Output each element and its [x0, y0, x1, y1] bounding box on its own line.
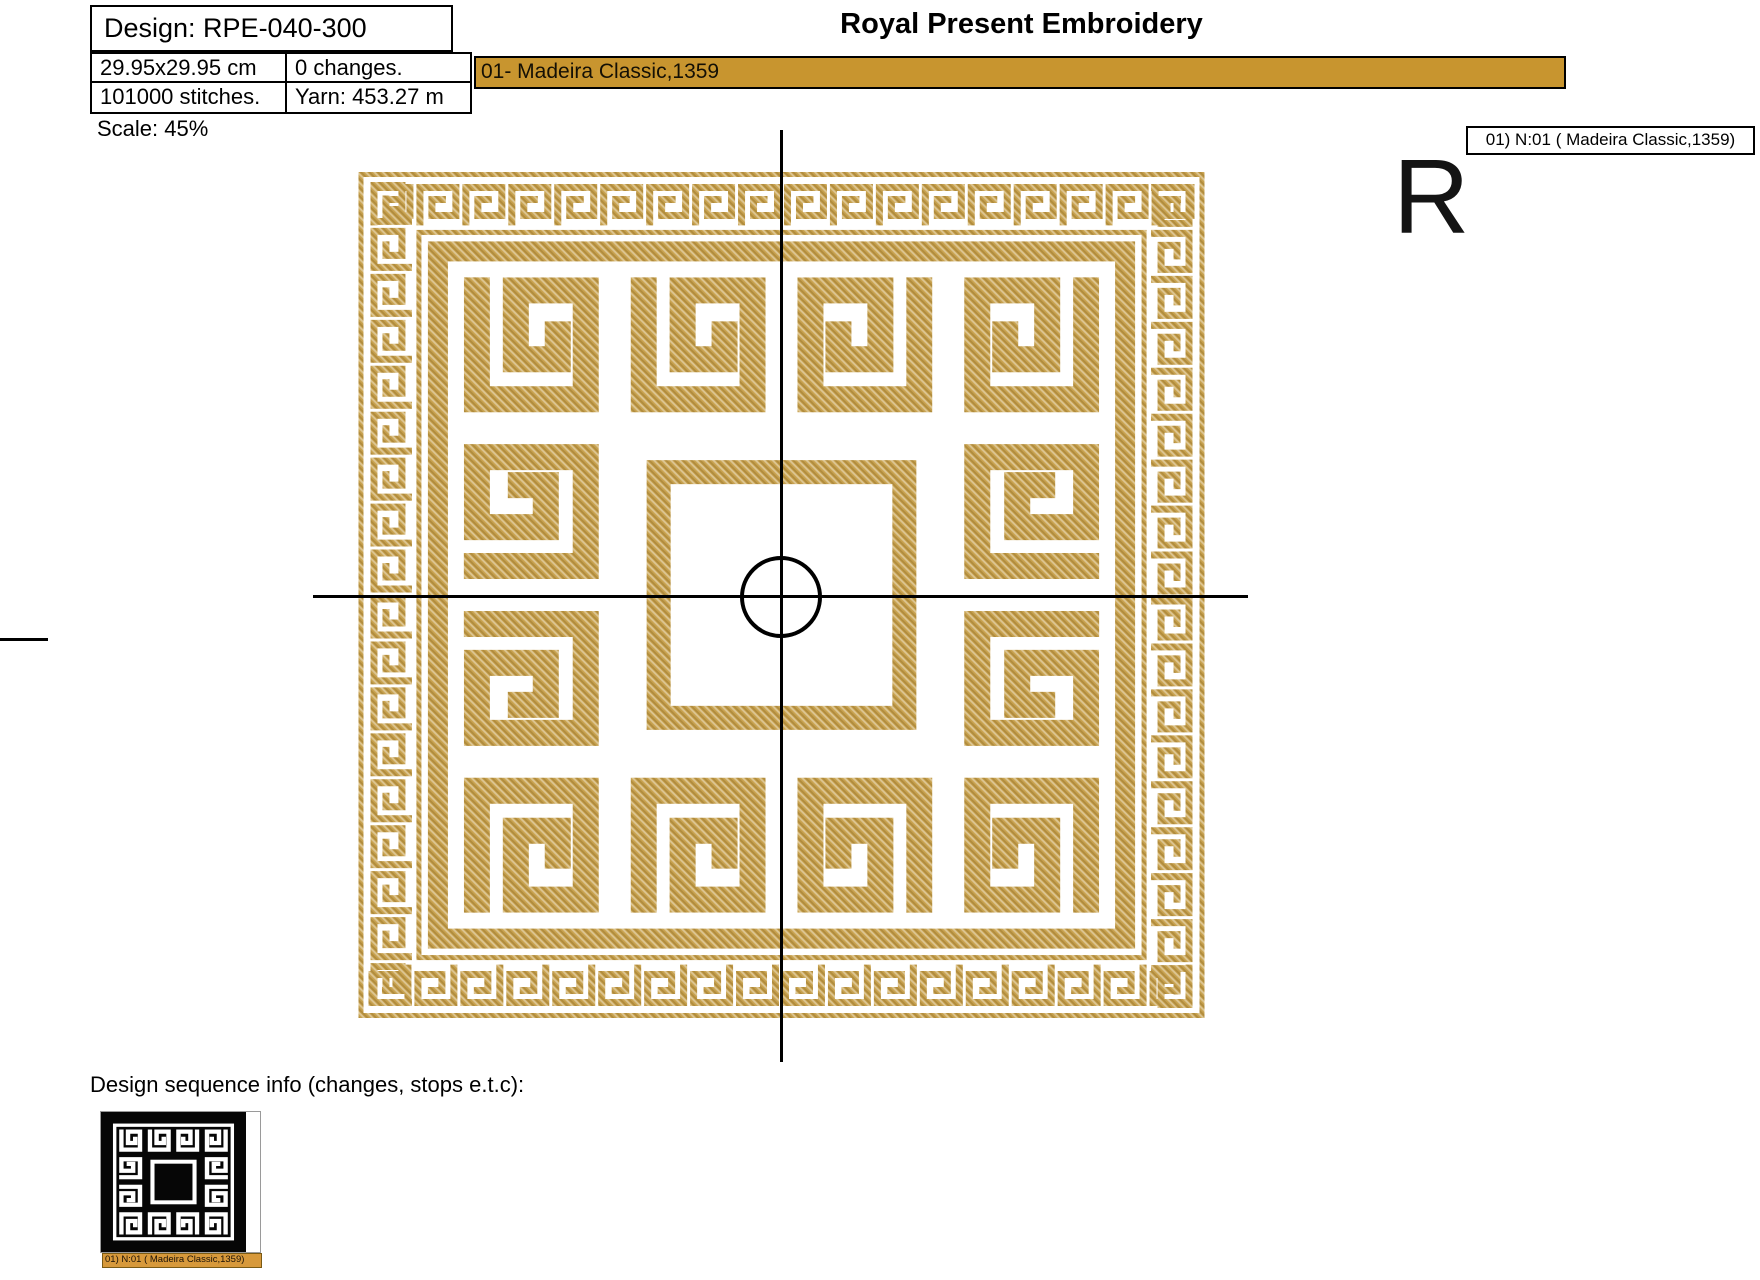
left-edge-tick [0, 638, 48, 641]
design-center-circle [740, 556, 822, 638]
brand-watermark-letter: R [1393, 142, 1470, 253]
thread-number-tag: 01) N:01 ( Madeira Classic,1359) [1466, 126, 1755, 155]
sequence-thumbnail-caption: 01) N:01 ( Madeira Classic,1359) [102, 1253, 262, 1268]
thread-color-bar: 01- Madeira Classic,1359 [474, 56, 1566, 89]
sequence-info-heading: Design sequence info (changes, stops e.t… [90, 1072, 524, 1098]
stat-changes: 0 changes. [287, 54, 470, 83]
design-title-box: Design: RPE-040-300 [90, 5, 453, 52]
sequence-thumbnail-image [101, 1112, 246, 1252]
brand-title: Royal Present Embroidery [477, 8, 1566, 41]
scale-label: Scale: 45% [97, 116, 208, 142]
stat-size: 29.95x29.95 cm [92, 54, 287, 83]
print-preview-page: Design: RPE-040-300 29.95x29.95 cm 0 cha… [0, 0, 1760, 1280]
design-stats-table: 29.95x29.95 cm 0 changes. 101000 stitche… [90, 52, 472, 114]
stat-stitches: 101000 stitches. [92, 83, 287, 112]
sequence-thumbnail[interactable] [100, 1111, 261, 1253]
stat-yarn: Yarn: 453.27 m [287, 83, 470, 112]
